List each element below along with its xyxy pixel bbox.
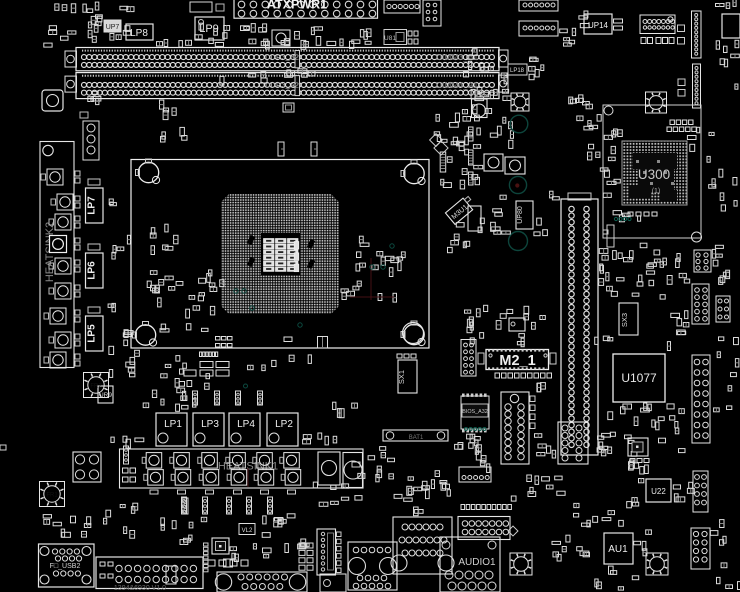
- svg-text:LP7: LP7: [87, 196, 98, 215]
- svg-text:U22: U22: [651, 487, 666, 496]
- svg-text:LP2: LP2: [275, 419, 293, 430]
- svg-text:F□_USB2: F□_USB2: [50, 563, 81, 570]
- svg-text:U300: U300: [638, 167, 670, 182]
- svg-text:BIOS_A32: BIOS_A32: [462, 409, 487, 415]
- svg-text:DDR3_B2: DDR3_B2: [265, 53, 299, 62]
- svg-text:AU1: AU1: [608, 544, 628, 555]
- svg-text:LP6: LP6: [87, 261, 98, 280]
- svg-text:U81: U81: [384, 35, 396, 42]
- svg-text:BAT1: BAT1: [409, 435, 424, 441]
- svg-text:UP7: UP7: [106, 24, 120, 31]
- svg-text:LP18: LP18: [510, 68, 525, 74]
- svg-text:M2_1: M2_1: [499, 353, 535, 369]
- svg-text:UP80: UP80: [517, 206, 524, 224]
- svg-text:DIMM4_A1: DIMM4_A1: [436, 80, 479, 90]
- svg-text:SX1: SX1: [397, 370, 406, 384]
- svg-text:SX3: SX3: [620, 313, 629, 327]
- svg-text:LP5: LP5: [87, 324, 98, 343]
- svg-text:1394&6930 V1.0: 1394&6930 V1.0: [114, 585, 166, 592]
- svg-text:LP8: LP8: [130, 28, 148, 39]
- svg-text:VL2: VL2: [242, 528, 253, 534]
- svg-text:FR1: FR1: [46, 493, 58, 499]
- svg-text:FR2: FR2: [90, 384, 102, 390]
- svg-text:AUDIO1: AUDIO1: [458, 557, 496, 568]
- svg-text:LP4: LP4: [237, 419, 255, 430]
- svg-text:ATXPWR1: ATXPWR1: [267, 0, 327, 12]
- svg-text:LP3: LP3: [201, 419, 219, 430]
- svg-text:LP1: LP1: [164, 419, 182, 430]
- svg-text:UP14: UP14: [588, 21, 609, 30]
- svg-text:DDR3_A2: DDR3_A2: [265, 80, 299, 89]
- svg-text:(1): (1): [652, 188, 661, 195]
- svg-text:U1077: U1077: [621, 371, 657, 385]
